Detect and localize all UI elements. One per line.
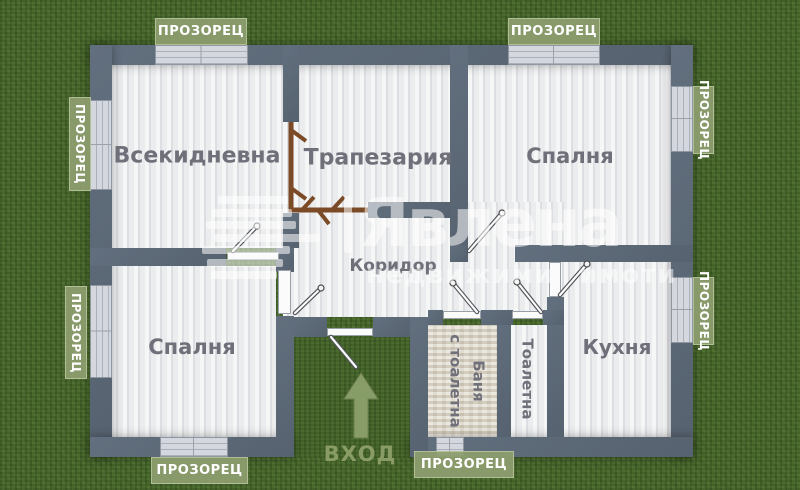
floor-dining-room [283,65,450,202]
logo-stripe [206,221,296,229]
room-label-bathroom: Баняс тоалетна [443,334,490,428]
window-label: ПРОЗОРЕЦ [155,18,247,45]
room-label-kitchen: Кухня [583,335,652,359]
wall-segment [450,245,466,262]
window-label: ПРОЗОРЕЦ [693,277,714,345]
window-label: ПРОЗОРЕЦ [65,286,87,379]
window-label: ПРОЗОРЕЦ [414,451,514,478]
wall-segment [481,310,513,325]
logo-stripe [214,234,320,242]
window [90,285,112,378]
logo-separator [344,196,352,253]
wall-segment [294,317,327,337]
logo-stripe [212,209,292,217]
window-label-text: ПРОЗОРЕЦ [697,271,711,351]
logo-stripe [202,246,290,254]
room-label-dining: Трапезария [304,146,453,171]
bathroom-label-line1: Баня [469,360,487,402]
brand-logo-icon [202,196,322,279]
window-label: ПРОЗОРЕЦ [69,97,91,191]
window-label-text: ПРОЗОРЕЦ [158,24,244,39]
wall-segment [410,317,428,457]
floor-plan-canvas: ПРОЗОРЕЦ ПРОЗОРЕЦ ПРОЗОРЕЦ ПРОЗОРЕЦ ПРОЗ… [0,0,800,490]
window [671,277,693,343]
wall-segment [368,202,450,218]
room-label-bedroom-top: Спалня [526,144,613,168]
entrance-recess [294,337,410,458]
wall-segment [283,45,299,122]
wall-segment [497,310,511,437]
room-label-corridor: Коридор [349,256,436,276]
window [671,86,693,152]
window [508,45,600,65]
window [160,437,228,457]
logo-stripe [207,259,283,267]
entrance-label: ВХОД [310,442,410,466]
window-label: ПРОЗОРЕЦ [693,86,714,154]
door-opening [549,262,561,297]
window-label-text: ПРОЗОРЕЦ [73,104,87,184]
bathroom-label-line2: с тоалетна [446,334,464,428]
window-label-text: ПРОЗОРЕЦ [156,463,242,478]
entrance-door-threshold [327,328,373,336]
logo-stripe [211,271,277,279]
wall-segment [450,45,468,262]
room-label-toilet: Тоалетна [515,339,538,420]
room-label-bedroom-bottom: Спалня [148,335,235,359]
window-label-text: ПРОЗОРЕЦ [697,80,711,160]
window-label: ПРОЗОРЕЦ [151,457,248,484]
room-label-living: Всекидневна [114,144,281,169]
wall-segment [373,317,410,337]
window-label-text: ПРОЗОРЕЦ [69,293,83,373]
wall-segment [276,316,294,457]
wall-segment [428,310,443,325]
window-label: ПРОЗОРЕЦ [508,18,600,45]
door-opening [512,311,543,319]
window [155,45,248,65]
window-label-text: ПРОЗОРЕЦ [421,457,507,472]
window-label-text: ПРОЗОРЕЦ [511,24,597,39]
wall-segment [543,310,564,325]
window [90,100,112,190]
door-opening [443,311,481,319]
logo-stripe [218,196,288,204]
wall-segment [515,245,693,262]
